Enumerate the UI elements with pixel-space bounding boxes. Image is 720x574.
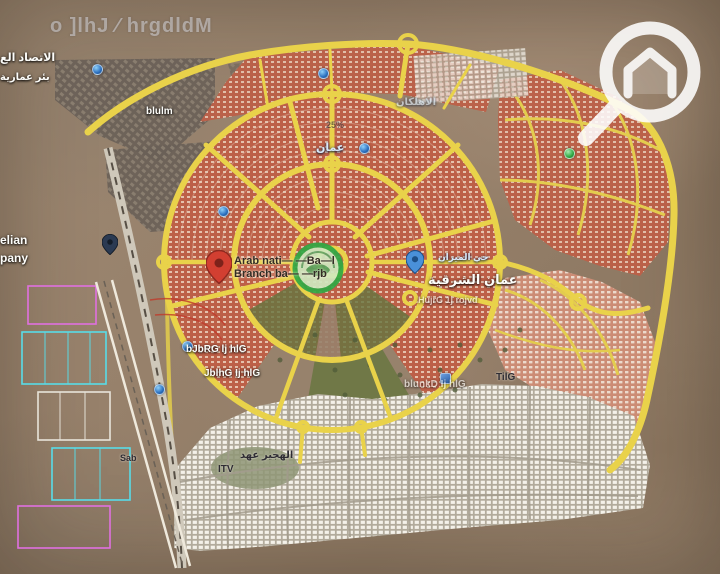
label-sharqiya: عمان الشرقية [428,273,518,287]
poi-dot-icon [92,64,103,75]
pin-label-line1: Arab nati— —Ba—l [234,255,335,268]
label-ittisad: الاتصاد الع [0,52,55,64]
label-itv: ITV [218,464,234,475]
label-jblhg: JblhG Ij hlG [204,368,260,379]
label-hajir: الهجير عهد [240,450,293,461]
label-elian: elian [0,234,27,247]
pin-label-line2: Branch ba— —rjb [234,268,335,281]
label-sab: Sab [120,454,137,464]
magnifier-house-logo-icon [556,2,720,152]
poi-dot-icon [154,384,165,395]
map-photo-stage[interactable]: Arab nati— —Ba—l Branch ba— —rjb o ]lhJ … [0,0,720,574]
label-blulm: blulm [146,106,173,117]
label-bjbrg: bJbRG lj hlG [186,344,247,355]
label-pct: 25% [326,121,344,131]
label-pany: pany [0,252,28,265]
watermark-text: o ]lhJ ⁄ hrgdldM [50,15,213,38]
label-hujrg: HujrG 1j rojvd [418,296,478,306]
label-ahlkan: الاهلكان [396,97,436,108]
label-bir-amaria: بئر عمارية [0,72,50,83]
label-hay-mizan: حي الميزان [438,253,489,263]
red-pin-icon[interactable] [206,250,232,284]
label-tilg: TilG [496,372,515,383]
blue-pin-icon [406,250,424,274]
poi-dot-icon [218,206,229,217]
poi-dot-icon [318,68,329,79]
destination-pin-label[interactable]: Arab nati— —Ba—l Branch ba— —rjb [234,255,335,281]
dark-pin-icon [102,234,118,255]
label-blunkd: blunkD Ij hlG [404,379,466,390]
label-oman: عمان [316,142,344,154]
poi-dot-icon [359,143,370,154]
